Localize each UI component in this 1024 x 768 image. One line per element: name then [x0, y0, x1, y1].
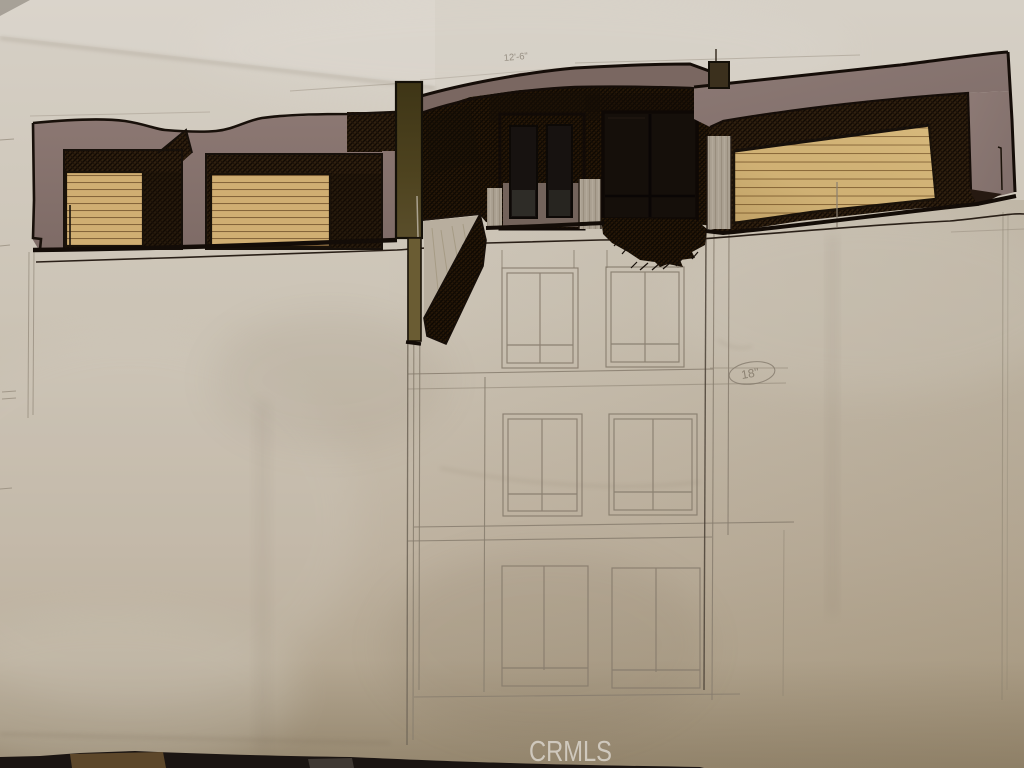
- svg-text:CRMLS: CRMLS: [529, 736, 612, 768]
- svg-text:12'-6": 12'-6": [503, 51, 528, 64]
